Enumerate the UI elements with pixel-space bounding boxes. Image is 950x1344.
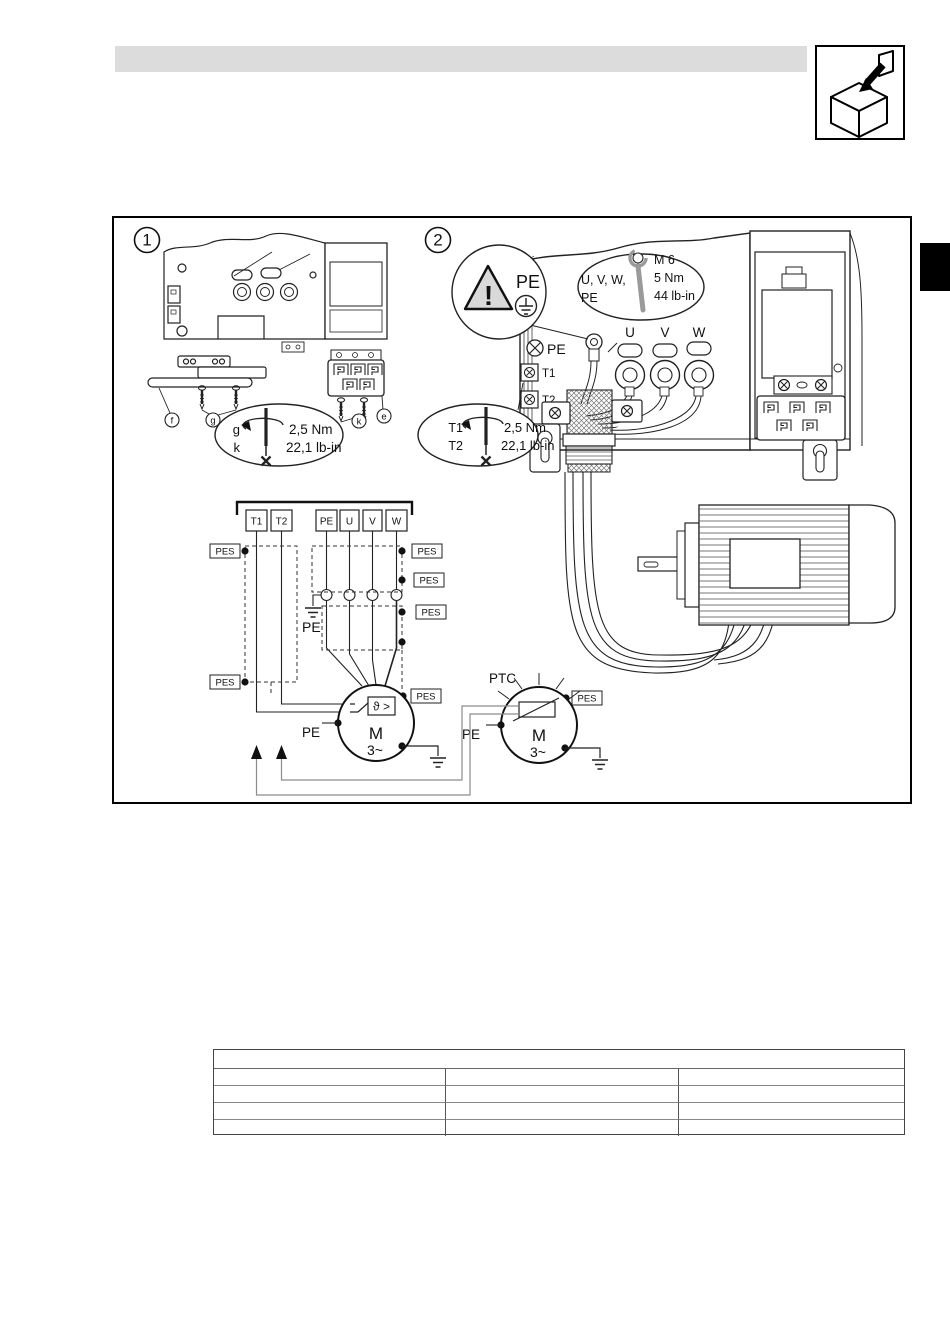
wiring-diagram: 1 <box>114 218 910 802</box>
u-label: U <box>625 325 635 340</box>
pes-dots <box>241 547 569 701</box>
shield-bracket <box>148 356 266 387</box>
wiring-figure: 1 <box>112 216 912 804</box>
motor2-m: M <box>532 726 546 745</box>
chapter-header-bar <box>115 46 807 72</box>
table-cell <box>214 1086 446 1103</box>
panel-2: 2 PE <box>418 228 895 674</box>
panel-1-number: 1 <box>135 228 160 253</box>
motor-2-symbol: PTC M 3~ PE <box>462 671 608 769</box>
callout-e: e <box>381 412 386 423</box>
motor-drawing <box>638 505 895 625</box>
page-edge-section-marker <box>920 243 950 291</box>
table-cell <box>446 1086 679 1103</box>
motor1-m: M <box>369 724 383 743</box>
torque2-lbin: 22,1 lb-in <box>501 438 554 453</box>
t1-label: T1 <box>542 368 555 380</box>
screw-g-2 <box>233 386 240 409</box>
pe-terminal-label: PE <box>547 341 566 357</box>
cable-gland <box>563 434 615 472</box>
bolt-pe: PE <box>581 291 598 305</box>
v-label: V <box>660 325 669 340</box>
table-cell <box>214 1069 446 1086</box>
pe-badge-label: PE <box>516 272 540 292</box>
table-cell <box>679 1120 904 1136</box>
torque2-item2: T2 <box>448 439 463 453</box>
up-arrow-icon <box>251 745 262 759</box>
bolt-nm: 5 Nm <box>654 271 684 285</box>
wiring-schematic: T1 T2 PE U V W PE <box>210 502 608 795</box>
motor1-phase: 3~ <box>367 742 383 758</box>
pes-label: PES <box>421 608 440 619</box>
pes-label: PES <box>215 547 234 558</box>
panel-2-number: 2 <box>426 228 451 253</box>
callout-f: f <box>171 416 174 427</box>
strip-v: V <box>369 517 376 528</box>
clamp-screw-right <box>622 406 633 417</box>
screw-g-1 <box>199 386 206 409</box>
clamp-screw-left <box>550 408 561 419</box>
insert-arrow-icon <box>859 65 883 92</box>
cable-clamp-block-1 <box>328 350 384 396</box>
strip-pe: PE <box>320 517 334 528</box>
strip-t1: T1 <box>251 517 263 528</box>
table-cell <box>446 1069 679 1086</box>
pe-stud <box>527 340 543 356</box>
table-cell <box>679 1103 904 1120</box>
panel-2-label: 2 <box>433 231 442 250</box>
drive-bottom-view <box>164 233 387 352</box>
up-arrow-icon <box>276 745 287 759</box>
torque-note-1: g k 2,5 Nm 22,1 lb-in <box>215 404 343 466</box>
bolt-targets: U, V, W, <box>581 273 626 287</box>
manual-page: 1 <box>0 0 950 1344</box>
torque1-nm: 2,5 Nm <box>289 422 333 437</box>
pes-label: PES <box>416 692 435 703</box>
torque2-item1: T1 <box>448 421 463 435</box>
motor1-pe-label: PE <box>302 725 320 740</box>
torque1-item2: k <box>234 440 241 455</box>
strip-u: U <box>346 517 353 528</box>
ground-icon <box>592 760 608 769</box>
pe-ground-label: PE <box>302 619 321 635</box>
panel-1: 1 <box>135 228 392 467</box>
spec-table <box>213 1049 905 1135</box>
callout-g: g <box>210 416 215 427</box>
svg-text:!: ! <box>484 280 493 311</box>
torque1-item1: g <box>233 422 240 437</box>
screw-k-1 <box>338 398 345 421</box>
spec-table-header <box>214 1050 904 1069</box>
table-cell <box>679 1069 904 1086</box>
spec-table-body <box>214 1069 904 1136</box>
table-cell <box>214 1103 446 1120</box>
pes-label: PES <box>215 678 234 689</box>
pes-label: PES <box>419 576 438 587</box>
table-cell <box>446 1103 679 1120</box>
torque2-nm: 2,5 Nm <box>504 420 546 435</box>
callout-k: k <box>357 417 362 428</box>
bolt-size: M 6 <box>654 253 675 267</box>
strip-t2: T2 <box>276 517 288 528</box>
cube-arrow-icon <box>817 47 903 138</box>
w-label: W <box>693 325 706 340</box>
table-cell <box>679 1086 904 1103</box>
pes-label: PES <box>577 694 596 705</box>
motor2-pe-label: PE <box>462 727 480 742</box>
torque1-lbin: 22,1 lb-in <box>286 440 342 455</box>
shield-outlines <box>245 546 402 696</box>
motor2-phase: 3~ <box>530 744 546 760</box>
table-cell <box>446 1120 679 1136</box>
pe-ground-icon <box>305 608 321 617</box>
table-cell <box>214 1120 446 1136</box>
bolt-lbin: 44 lb-in <box>654 289 695 303</box>
ground-icon <box>430 758 446 767</box>
ptc-label: PTC <box>489 671 516 686</box>
thermal-contact-label: ϑ > <box>373 700 390 714</box>
pes-boxes <box>210 544 602 705</box>
pes-label: PES <box>417 547 436 558</box>
module-insert-icon <box>815 45 905 140</box>
strip-w: W <box>392 517 402 528</box>
panel-1-label: 1 <box>142 231 151 250</box>
